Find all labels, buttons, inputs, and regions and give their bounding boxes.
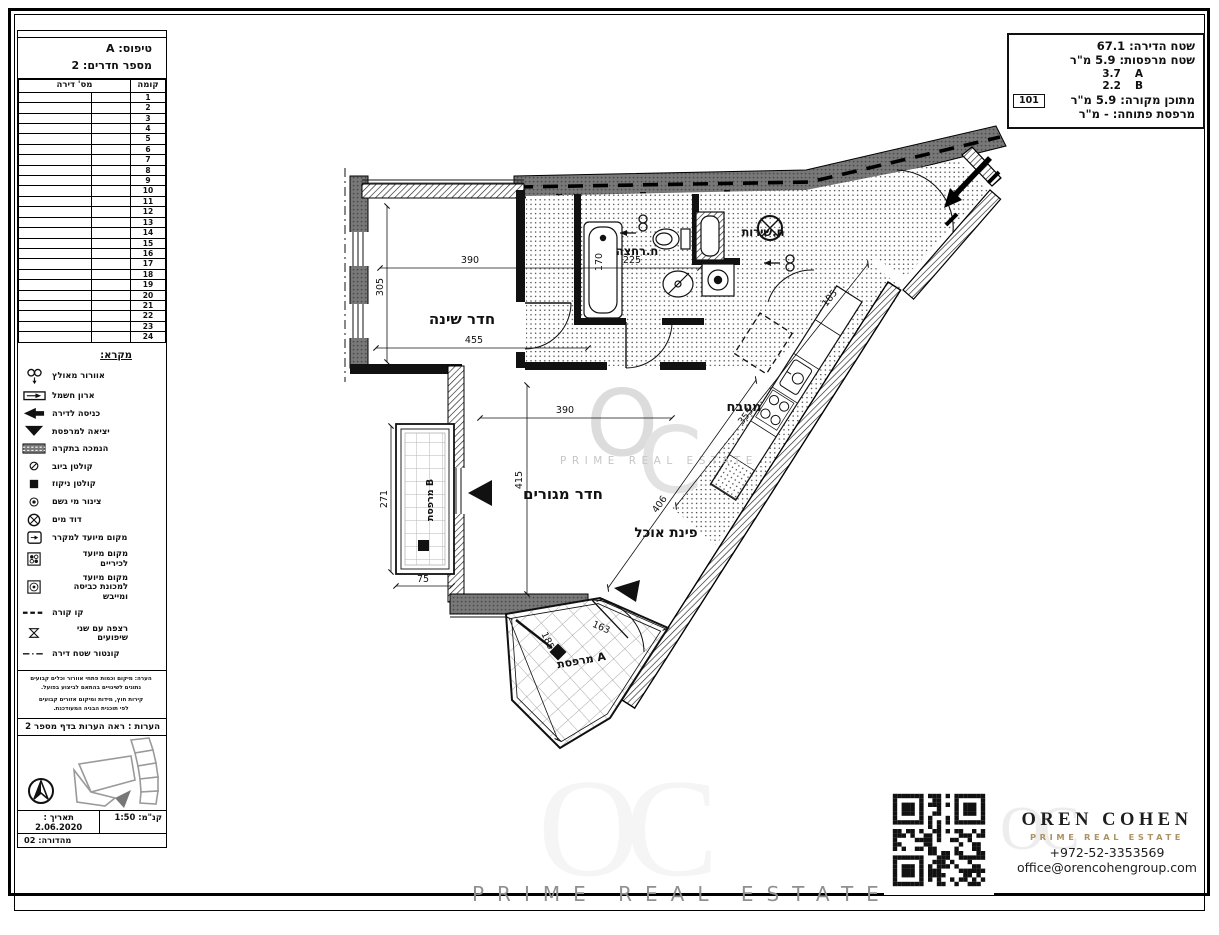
floor-cell: 6 xyxy=(131,144,166,154)
sidebar: טיפוס: A מספר חדרים: 2 קומה מס' דירה 1 2… xyxy=(17,30,167,847)
floor-cell: 4 xyxy=(131,124,166,134)
toilet-icon xyxy=(653,229,690,249)
sewage-drain-icon xyxy=(22,461,46,471)
apartment-cell xyxy=(19,144,92,154)
dim-balcony-b-height: 271 xyxy=(379,490,390,508)
dim-bedroom-height: 305 xyxy=(375,278,386,296)
legend-item: קו קורה xyxy=(22,606,128,619)
north-arrow-icon xyxy=(29,779,53,803)
qr-code-image xyxy=(884,785,994,895)
legend-item-label: הנמכה בתקרה xyxy=(52,444,108,454)
apartment-cell xyxy=(19,280,92,290)
floor-cell: 2 xyxy=(131,103,166,113)
floor-cell: 24 xyxy=(131,332,166,342)
apt-no-cell xyxy=(92,280,131,290)
legend-item-label: כניסה לדירה xyxy=(52,409,100,419)
area-info-box: שטח הדירה: 67.1 שטח מרפסות: 5.9 מ"ר 3.7 … xyxy=(1007,33,1205,129)
legend-item-label: יציאה למרפסת xyxy=(52,427,110,437)
wc-label: ח.שירות xyxy=(741,225,784,239)
key-plan-marker xyxy=(115,790,131,808)
floor-cell: 19 xyxy=(131,280,166,290)
apt-no-cell xyxy=(92,92,131,102)
legend-item-label: קונטור שטח דירה xyxy=(52,649,120,659)
floor-cell: 20 xyxy=(131,290,166,300)
apt-no-cell xyxy=(92,238,131,248)
apt-no-cell xyxy=(92,332,131,342)
legend-items: אוורור מאולץ ארון חשמל כניסה לדירה יציאה… xyxy=(22,367,158,660)
legend-item-label: קולטן ביוב xyxy=(52,462,93,472)
floor-row: 7 xyxy=(19,155,166,165)
covered-area-line: מתוכן מקורה: 5.9 מ"ר 101 xyxy=(1013,93,1195,107)
legend-item: ארון חשמל xyxy=(22,390,128,403)
floor-cell: 17 xyxy=(131,259,166,269)
contour-line-icon xyxy=(22,651,46,657)
apartment-area-line: שטח הדירה: 67.1 xyxy=(1013,39,1195,53)
floor-cell: 8 xyxy=(131,165,166,175)
brand-email: office@orencohengroup.com xyxy=(1004,860,1210,875)
floor-cell: 12 xyxy=(131,207,166,217)
floor-row: 21 xyxy=(19,300,166,310)
apt-no-cell xyxy=(92,290,131,300)
floor-column-header: קומה xyxy=(131,79,166,92)
apartment-cell xyxy=(19,124,92,134)
bedroom-walls xyxy=(348,176,525,374)
apartment-cell xyxy=(19,113,92,123)
apt-no-cell xyxy=(92,228,131,238)
floor-row: 15 xyxy=(19,238,166,248)
beam-line-icon xyxy=(22,610,46,616)
balconies-area-line: שטח מרפסות: 5.9 מ"ר xyxy=(1013,53,1195,67)
brand-tagline: PRIME REAL ESTATE xyxy=(1004,832,1210,842)
ceiling-drop-icon xyxy=(22,443,46,454)
apartment-cell xyxy=(19,134,92,144)
apartment-column-header: מס' דירה xyxy=(19,79,131,92)
apt-no-cell xyxy=(92,124,131,134)
apt-no-cell xyxy=(92,311,131,321)
balcony-b-value: 2.2 xyxy=(1102,80,1121,93)
apartment-cell xyxy=(19,176,92,186)
legend-item: הנמכה בתקרה xyxy=(22,442,128,455)
forced-vent-icon xyxy=(22,367,46,385)
apt-no-cell xyxy=(92,259,131,269)
bedroom-window-left-2 xyxy=(348,304,370,338)
floor-row: 4 xyxy=(19,124,166,134)
bedroom-window-left-1 xyxy=(348,232,370,266)
legend-item: קולטן ניקוז xyxy=(22,478,128,491)
balcony-b-letter: B xyxy=(1135,80,1143,93)
rain-pipe-icon xyxy=(22,497,46,507)
floor-cell: 9 xyxy=(131,176,166,186)
brand-phone: +972-52-3353569 xyxy=(1004,845,1210,860)
floor-cell: 10 xyxy=(131,186,166,196)
floor-row: 16 xyxy=(19,248,166,258)
floor-row: 23 xyxy=(19,321,166,331)
legend-item-label: ארון חשמל xyxy=(52,391,95,401)
apartment-cell xyxy=(19,165,92,175)
floor-cell: 18 xyxy=(131,269,166,279)
floor-row: 9 xyxy=(19,176,166,186)
legend-item: רצפה עם שני שיפועים xyxy=(22,624,128,643)
type-box: טיפוס: A מספר חדרים: 2 xyxy=(17,37,167,79)
balcony-b-drain-icon xyxy=(418,540,429,551)
legend-item: מקום מיועד למקרר xyxy=(22,531,128,544)
floor-row: 17 xyxy=(19,259,166,269)
apt-no-cell xyxy=(92,113,131,123)
stove-icon xyxy=(22,552,46,566)
legend-item: אוורור מאולץ xyxy=(22,367,128,385)
electric-cabinet-icon xyxy=(22,390,46,402)
notes-reference: הערות : ראה הערות בדף מספר 2 xyxy=(17,718,167,736)
legend-item: כניסה לדירה xyxy=(22,407,128,420)
type-label: טיפוס: A xyxy=(22,41,152,58)
apt-no-cell xyxy=(92,207,131,217)
balcony-a-letter: A xyxy=(1135,68,1143,81)
hall-wall xyxy=(525,362,607,370)
note-line: הערה: מיקום וכמות פתחי אוורור וכלים קבוע… xyxy=(24,675,158,684)
floor-cell: 22 xyxy=(131,311,166,321)
dim-balcony-b-width: 75 xyxy=(417,574,429,585)
rooms-count-label: מספר חדרים: 2 xyxy=(22,58,152,75)
apartment-cell xyxy=(19,103,92,113)
apartment-cell xyxy=(19,259,92,269)
floor-row: 2 xyxy=(19,103,166,113)
apt-no-cell xyxy=(92,144,131,154)
apartment-cell xyxy=(19,228,92,238)
dining-label: פינת אוכל xyxy=(634,525,697,541)
floor-row: 19 xyxy=(19,280,166,290)
floor-cell: 3 xyxy=(131,113,166,123)
legend-item-label: צינור מי גשם xyxy=(52,497,101,507)
unit-number-badge: 101 xyxy=(1013,94,1045,108)
living-label: חדר מגורים xyxy=(523,485,603,503)
bottom-prime-watermark: PRIME REAL ESTATE xyxy=(472,882,892,906)
entry-arrow-icon xyxy=(22,407,46,420)
apt-no-cell xyxy=(92,176,131,186)
bedroom-label: חדר שינה xyxy=(429,310,495,328)
washing-machine-icon xyxy=(702,264,734,296)
apt-no-cell xyxy=(92,217,131,227)
key-plan-box xyxy=(17,735,167,811)
legend-item-label: רצפה עם שני שיפועים xyxy=(52,624,128,643)
balcony-exit-icon xyxy=(22,425,46,437)
scale-date-row: קנ"מ: 1:50 תאריך : 2.06.2020 xyxy=(17,809,167,835)
hall-wall-2 xyxy=(660,362,706,370)
floor-cell: 14 xyxy=(131,228,166,238)
floor-cell: 16 xyxy=(131,248,166,258)
floor-cell: 1 xyxy=(131,92,166,102)
covered-area-text: מתוכן מקורה: 5.9 מ"ר xyxy=(1071,93,1195,107)
drainage-icon xyxy=(22,479,46,489)
shower-shaft xyxy=(696,212,724,260)
apt-no-cell xyxy=(92,165,131,175)
legend-item-label: דוד מים xyxy=(52,515,82,525)
apartment-cell xyxy=(19,248,92,258)
balcony-b-exit-icon xyxy=(468,480,492,506)
legend-item: מקום מיועד למכונת כביסה ומייבש xyxy=(22,573,128,602)
bath-label: ח.רחצה xyxy=(616,244,659,258)
floor-row: 22 xyxy=(19,311,166,321)
legend-item-label: קולטן ניקוז xyxy=(52,479,96,489)
legend-item-label: מקום מיועד למקרר xyxy=(52,533,127,543)
apartment-cell xyxy=(19,155,92,165)
brand-block: OC OREN COHEN PRIME REAL ESTATE +972-52-… xyxy=(884,790,1210,894)
legend-item-label: מקום מיועד לכיריים xyxy=(52,549,128,568)
apartment-cell xyxy=(19,300,92,310)
floor-row: 3 xyxy=(19,113,166,123)
floor-row: 1 xyxy=(19,92,166,102)
apartment-cell xyxy=(19,92,92,102)
apt-no-cell xyxy=(92,248,131,258)
floor-cell: 13 xyxy=(131,217,166,227)
apartment-cell xyxy=(19,238,92,248)
legend-item: קולטן ביוב xyxy=(22,460,128,473)
fridge-icon xyxy=(22,531,46,544)
apartment-cell xyxy=(19,332,92,342)
note-line: לפי תוכנית הבניה המעודכנת. xyxy=(24,705,158,714)
brand-name: OREN COHEN xyxy=(1004,810,1210,831)
dim-tub-height: 170 xyxy=(594,253,605,271)
apartment-cell xyxy=(19,269,92,279)
slope-floor-icon xyxy=(22,627,46,639)
note-line: נתונים לשינויים בהתאם לביצוע בפועל. xyxy=(24,684,158,693)
revision-label: מהדורה: 02 xyxy=(17,833,167,848)
floor-row: 5 xyxy=(19,134,166,144)
legend-item-label: אוורור מאולץ xyxy=(52,371,105,381)
floor-row: 20 xyxy=(19,290,166,300)
scale-label: קנ"מ: 1:50 xyxy=(99,810,166,834)
svg-text:PRIME REAL ESTATE: PRIME REAL ESTATE xyxy=(560,455,758,467)
water-heater-icon xyxy=(22,513,46,527)
dim-bedroom-width2: 455 xyxy=(465,335,483,346)
floor-row: 6 xyxy=(19,144,166,154)
sink-icon xyxy=(663,271,693,297)
apartment-cell xyxy=(19,207,92,217)
apt-no-cell xyxy=(92,321,131,331)
apartment-cell xyxy=(19,196,92,206)
legend-item: קונטור שטח דירה xyxy=(22,647,128,660)
balcony-a-area-row: 3.7 A xyxy=(1013,68,1195,81)
apt-no-cell xyxy=(92,103,131,113)
apt-no-cell xyxy=(92,269,131,279)
note-line: קירות חוץ, מידות ומיקום אזורים קבועים xyxy=(24,696,158,705)
apt-no-cell xyxy=(92,196,131,206)
small-notes: הערה: מיקום וכמות פתחי אוורור וכלים קבוע… xyxy=(17,670,167,720)
apt-no-cell xyxy=(92,300,131,310)
apartment-cell xyxy=(19,321,92,331)
balcony-a-exit-icon xyxy=(614,580,640,602)
brand-text: OC OREN COHEN PRIME REAL ESTATE +972-52-… xyxy=(1004,810,1210,875)
key-plan xyxy=(19,736,166,810)
floor-row: 13 xyxy=(19,217,166,227)
apartment-cell xyxy=(19,217,92,227)
legend-item: מקום מיועד לכיריים xyxy=(22,549,128,568)
floor-row: 18 xyxy=(19,269,166,279)
floor-cell: 15 xyxy=(131,238,166,248)
floors-table-body: 1 2 3 4 5 6 7 8 9 10 11 12 13 14 15 16 1… xyxy=(19,92,166,342)
balcony-a-value: 3.7 xyxy=(1102,68,1121,81)
floor-row: 8 xyxy=(19,165,166,175)
apt-no-cell xyxy=(92,155,131,165)
apt-no-cell xyxy=(92,134,131,144)
floor-row: 14 xyxy=(19,228,166,238)
qr-code xyxy=(884,785,994,899)
floor-row: 12 xyxy=(19,207,166,217)
balcony-b-area-row: 2.2 B xyxy=(1013,80,1195,93)
kitchen-label: מטבח xyxy=(726,400,761,415)
balcony-b-label: מרפסת B xyxy=(425,479,436,521)
legend-item-label: קו קורה xyxy=(52,608,84,618)
legend-item: דוד מים xyxy=(22,513,128,527)
washer-icon xyxy=(22,580,46,594)
legend-item: יציאה למרפסת xyxy=(22,425,128,438)
legend-item-label: מקום מיועד למכונת כביסה ומייבש xyxy=(52,573,128,602)
floors-table: קומה מס' דירה 1 2 3 4 5 6 7 8 9 10 11 12… xyxy=(18,79,166,343)
apt-no-cell xyxy=(92,186,131,196)
floor-cell: 23 xyxy=(131,321,166,331)
floor-row: 10 xyxy=(19,186,166,196)
apartment-cell xyxy=(19,290,92,300)
apartment-cell xyxy=(19,186,92,196)
open-balcony-line: מרפסת פתוחה: - מ"ר xyxy=(1013,107,1195,121)
legend-box: מקרא: אוורור מאולץ ארון חשמל כניסה לדירה… xyxy=(17,342,167,672)
apartment-cell xyxy=(19,311,92,321)
floor-cell: 7 xyxy=(131,155,166,165)
floor-cell: 5 xyxy=(131,134,166,144)
floor-row: 11 xyxy=(19,196,166,206)
legend-item: צינור מי גשם xyxy=(22,495,128,508)
dim-living-width: 390 xyxy=(556,405,574,416)
floor-cell: 11 xyxy=(131,196,166,206)
floor-cell: 21 xyxy=(131,300,166,310)
date-label: תאריך : 2.06.2020 xyxy=(18,810,99,834)
floors-table-box: קומה מס' דירה 1 2 3 4 5 6 7 8 9 10 11 12… xyxy=(17,78,167,344)
legend-title: מקרא: xyxy=(22,350,132,361)
floor-row: 24 xyxy=(19,332,166,342)
dim-bedroom-width: 390 xyxy=(461,255,479,266)
